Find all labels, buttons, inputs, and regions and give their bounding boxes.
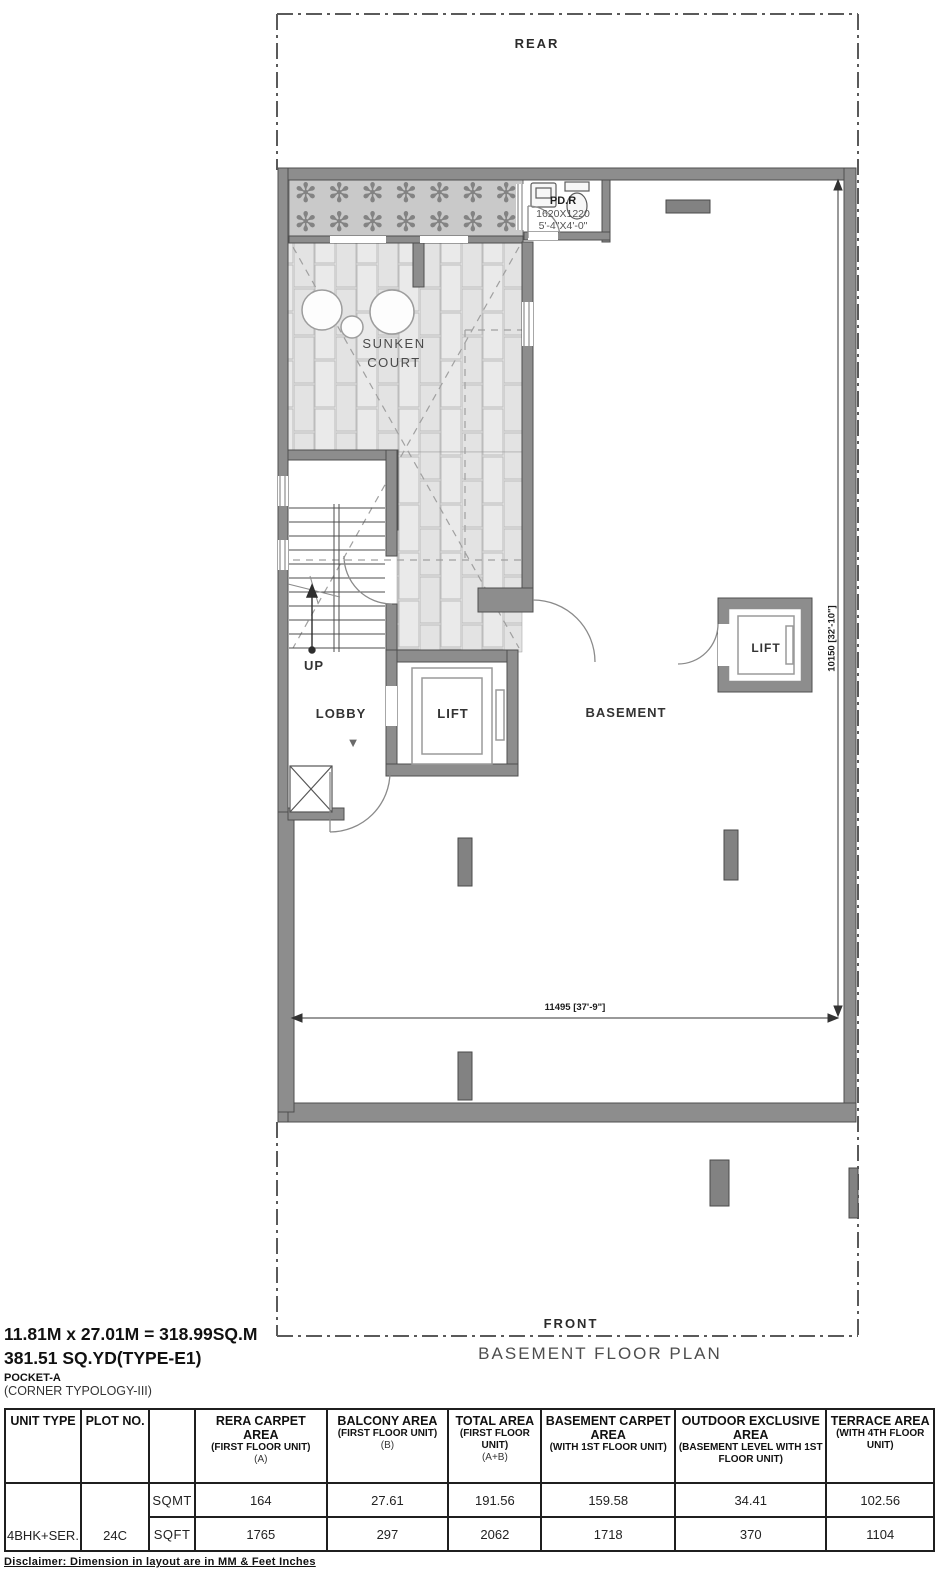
- value-cell: 102.56: [826, 1483, 934, 1517]
- header-balcony: BALCONY AREA (FIRST FLOOR UNIT) (B): [327, 1409, 449, 1483]
- height-dimension: 10150 [32'-10"]: [827, 579, 838, 699]
- palm-icon: ✻: [391, 180, 421, 207]
- palm-icon: ✻: [424, 209, 454, 236]
- palm-icon: ✻: [358, 209, 388, 236]
- lift2-label: LIFT: [736, 641, 796, 655]
- header-plot-no: PLOT NO.: [81, 1409, 149, 1483]
- palm-icon: ✻: [458, 180, 488, 207]
- width-dimension: 11495 [37'-9"]: [490, 1002, 660, 1013]
- pdr-name: PD.R: [521, 195, 605, 208]
- lift-label: LIFT: [413, 706, 493, 721]
- lobby-label: LOBBY: [291, 706, 391, 721]
- header-total: TOTAL AREA (FIRST FLOOR UNIT) (A+B): [448, 1409, 541, 1483]
- value-cell: 34.41: [675, 1483, 827, 1517]
- value-cell: 2062: [448, 1517, 541, 1551]
- planting-bed: ✻ ✻ ✻ ✻ ✻ ✻ ✻ ✻ ✻ ✻ ✻ ✻ ✻ ✻: [289, 179, 523, 237]
- pdr-dimension-ft: 5'-4"X4'-0": [521, 220, 605, 232]
- value-cell: 1765: [195, 1517, 327, 1551]
- palm-icon: ✻: [291, 209, 321, 236]
- unit-label-cell: SQMT: [149, 1483, 195, 1517]
- service-shaft: [290, 766, 332, 812]
- palm-icon: ✻: [491, 180, 521, 207]
- plot-yd-line: 381.51 SQ.YD(TYPE-E1): [4, 1346, 257, 1370]
- front-label: FRONT: [521, 1316, 621, 1331]
- palm-icon: ✻: [458, 209, 488, 236]
- value-cell: 27.61: [327, 1483, 449, 1517]
- value-cell: 370: [675, 1517, 827, 1551]
- lobby-direction-icon: ▼: [338, 735, 368, 750]
- header-terrace: TERRACE AREA (WITH 4TH FLOOR UNIT): [826, 1409, 934, 1483]
- palm-icon: ✻: [358, 180, 388, 207]
- typology-label: (CORNER TYPOLOGY-III): [4, 1384, 257, 1398]
- palm-icon: ✻: [491, 209, 521, 236]
- table-row-sqmt: 4BHK+SER. 24C SQMT 164 27.61 191.56 159.…: [5, 1483, 934, 1517]
- rear-label: REAR: [492, 36, 582, 51]
- sunken-court-line1: SUNKEN: [344, 334, 444, 353]
- header-unit-column: [149, 1409, 195, 1483]
- value-cell: 191.56: [448, 1483, 541, 1517]
- sunken-court-label: SUNKEN COURT: [344, 334, 444, 372]
- header-rera-carpet: RERA CARPET AREA (FIRST FLOOR UNIT) (A): [195, 1409, 327, 1483]
- unit-label-cell: SQFT: [149, 1517, 195, 1551]
- plot-size-line: 11.81M x 27.01M = 318.99SQ.M: [4, 1322, 257, 1346]
- unit-type-cell: 4BHK+SER.: [5, 1483, 81, 1551]
- header-unit-type: UNIT TYPE: [5, 1409, 81, 1483]
- value-cell: 164: [195, 1483, 327, 1517]
- area-table: UNIT TYPE PLOT NO. RERA CARPET AREA (FIR…: [4, 1408, 935, 1552]
- value-cell: 1718: [541, 1517, 675, 1551]
- pdr-dimension-mm: 1620X1220: [521, 208, 605, 220]
- sunken-court-line2: COURT: [344, 353, 444, 372]
- palm-icon: ✻: [291, 180, 321, 207]
- value-cell: 159.58: [541, 1483, 675, 1517]
- up-label: UP: [296, 658, 332, 673]
- basement-label: BASEMENT: [568, 705, 684, 720]
- value-cell: 1104: [826, 1517, 934, 1551]
- header-outdoor-exclusive: OUTDOOR EXCLUSIVE AREA (BASEMENT LEVEL W…: [675, 1409, 827, 1483]
- table-header-row: UNIT TYPE PLOT NO. RERA CARPET AREA (FIR…: [5, 1409, 934, 1483]
- basement-floor-plan-page: { "plan": { "rear_label": "REAR", "front…: [0, 0, 935, 1584]
- palm-icon: ✻: [324, 180, 354, 207]
- disclaimer-text: Disclaimer: Dimension in layout are in M…: [4, 1556, 316, 1568]
- value-cell: 297: [327, 1517, 449, 1551]
- plan-title: BASEMENT FLOOR PLAN: [440, 1344, 760, 1364]
- pdr-room-label: PD.R 1620X1220 5'-4"X4'-0": [521, 195, 605, 232]
- pocket-label: POCKET-A: [4, 1372, 257, 1384]
- palm-icon: ✻: [424, 180, 454, 207]
- plot-summary: 11.81M x 27.01M = 318.99SQ.M 381.51 SQ.Y…: [4, 1322, 257, 1398]
- header-basement-carpet: BASEMENT CARPET AREA (WITH 1ST FLOOR UNI…: [541, 1409, 675, 1483]
- plot-no-cell: 24C: [81, 1483, 149, 1551]
- palm-icon: ✻: [324, 209, 354, 236]
- palm-icon: ✻: [391, 209, 421, 236]
